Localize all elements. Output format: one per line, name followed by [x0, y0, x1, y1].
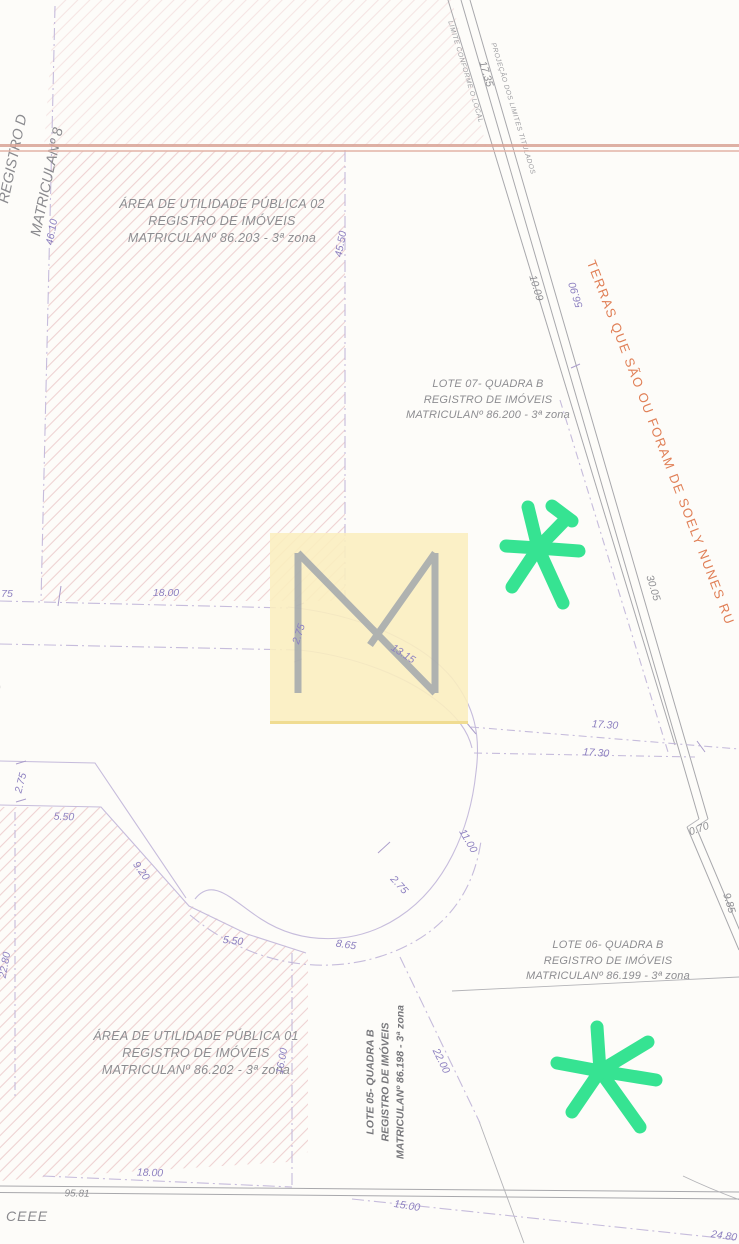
dimension-label: 5.50 — [222, 934, 244, 948]
dimension-label: 22.00 — [430, 1047, 452, 1076]
dimension-label: 46.10 — [44, 218, 60, 246]
dimension-label: 16.00 — [274, 1047, 290, 1075]
scan-fold-line — [0, 144, 739, 147]
dimension-label: 30.05 — [643, 574, 662, 603]
dimension-label: 95.81 — [64, 1188, 89, 1199]
dimension-label: 2.75 — [388, 873, 411, 896]
dimension-label: 18.00 — [137, 1167, 164, 1180]
dimension-label: 45.50 — [333, 230, 349, 258]
dimension-label: 17.30 — [582, 746, 609, 760]
dimension-label: 9.20 — [130, 859, 152, 883]
dimension-label: 75 — [1, 588, 13, 600]
dimension-label: 0.70 — [687, 820, 710, 838]
dimension-label: 17.30 — [591, 718, 618, 732]
dimension-labels-layer: 17.3510.0956.9030.050.709.8546.1045.5075… — [0, 0, 739, 1244]
dimension-label: 13.15 — [389, 642, 418, 666]
dimension-label: 56.90 — [566, 281, 585, 310]
dimension-label: 17.35 — [476, 60, 495, 89]
dimension-label: 5.50 — [54, 811, 75, 824]
dimension-label: 2.75 — [13, 772, 30, 795]
dimension-label: 2.75 — [290, 622, 308, 645]
dimension-label: 24.80 — [710, 1228, 738, 1244]
scan-fold-line-2 — [0, 150, 739, 152]
dimension-label: 9.85 — [720, 891, 737, 914]
survey-map-canvas: ÁREA DE UTILIDADE PÚBLICA 02 REGISTRO DE… — [0, 0, 739, 1244]
dimension-label: 22.80 — [0, 951, 13, 979]
dimension-label: 10.09 — [526, 274, 545, 303]
dimension-label: 11.00 — [456, 827, 479, 855]
dimension-label: 8.65 — [335, 938, 357, 953]
dimension-label: 18.00 — [153, 587, 179, 599]
dimension-label: 15.00 — [393, 1198, 421, 1214]
